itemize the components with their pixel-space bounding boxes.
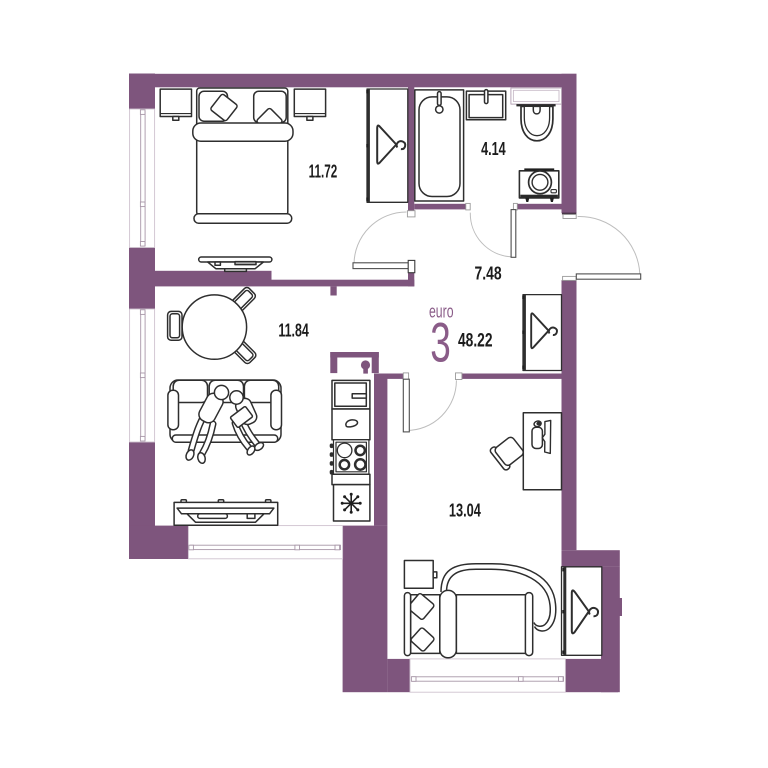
svg-text:4.14: 4.14: [481, 139, 506, 159]
svg-text:7.48: 7.48: [475, 264, 502, 284]
svg-text:3: 3: [430, 312, 451, 375]
svg-text:48.22: 48.22: [458, 331, 493, 352]
svg-text:11.84: 11.84: [278, 321, 309, 341]
svg-text:11.72: 11.72: [309, 162, 338, 182]
svg-text:13.04: 13.04: [449, 501, 481, 521]
